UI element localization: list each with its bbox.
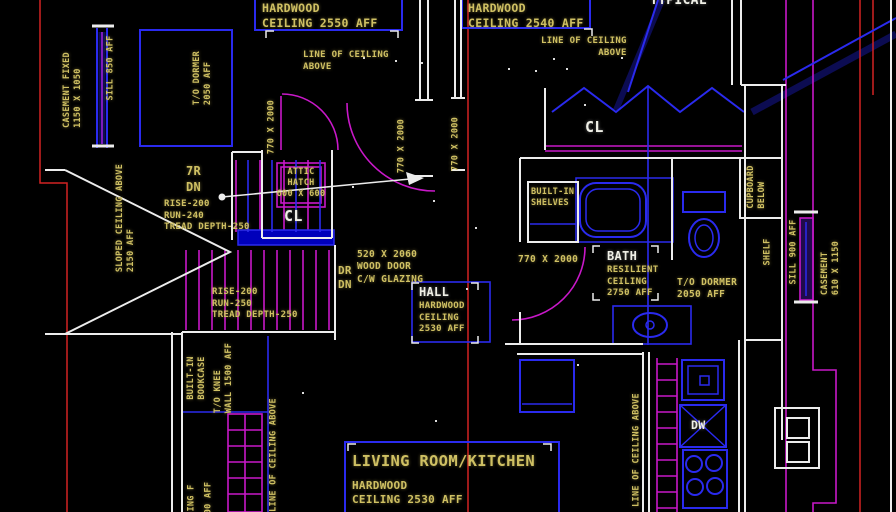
- label-line-of-ceiling-bottom-left: LINE OF CEILING ABOVE: [268, 398, 279, 512]
- label-to-dormer-right: T/O DORMER 2050 AFF: [677, 277, 737, 302]
- label-casement-610: CASEMENT 610 X 1150: [820, 241, 842, 295]
- label-cl-right: CL: [585, 118, 604, 138]
- label-line-of-ceiling-right: LINE OF CEILING ABOVE: [541, 36, 627, 59]
- label-builtin-bookcase: BUILT-IN BOOKCASE: [186, 356, 208, 399]
- label-living-sub: HARDWOOD CEILING 2530 AFF: [352, 479, 463, 508]
- label-sill-850: SILL 850 AFF: [105, 35, 116, 100]
- blue-layer: [97, 0, 896, 512]
- label-partial-1: ING F: [186, 484, 197, 511]
- label-dishwasher: DW: [691, 418, 705, 433]
- label-to-dormer-left: T/O DORMER 2050 AFF: [192, 51, 214, 105]
- label-partial-2: 00 AFF: [203, 482, 214, 512]
- cad-floorplan-canvas: HARDWOOD CEILING 2550 AFF LINE OF CEILIN…: [0, 0, 896, 512]
- label-cupboard-below: CUPBOARD BELOW: [746, 165, 768, 208]
- label-attic-hatch: ATTIC HATCH 600 X 600: [277, 167, 326, 200]
- label-hall-sub: HARDWOOD CEILING 2530 AFF: [419, 301, 465, 336]
- label-door-770-b: 770 X 2000: [396, 119, 407, 173]
- label-living-room-kitchen: LIVING ROOM/KITCHEN: [352, 451, 535, 471]
- label-wood-door: 520 X 2060 WOOD DOOR C/W GLAZING: [357, 249, 423, 286]
- label-bath: BATH: [607, 249, 637, 265]
- label-sloped-ceiling: SLOPED CEILING ABOVE 2150 AFF: [115, 164, 137, 272]
- label-7r-dn: 7R DN: [186, 164, 201, 195]
- label-typical: TYPICAL: [650, 0, 707, 10]
- red-reference-lines: [40, 0, 873, 512]
- label-to-knee-wall: T/O KNEE WALL 1500 AFF: [213, 343, 235, 413]
- label-line-of-ceiling-kitchen: LINE OF CEILING ABOVE: [631, 393, 642, 507]
- label-line-of-ceiling-left: LINE OF CEILING ABOVE: [303, 50, 389, 73]
- label-hardwood-2540: HARDWOOD CEILING 2540 AFF: [468, 1, 584, 31]
- label-hardwood-2550: HARDWOOD CEILING 2550 AFF: [262, 1, 378, 31]
- label-door-770-d: 770 X 2000: [518, 254, 578, 266]
- label-door-770-a: 770 X 2000: [266, 100, 277, 154]
- label-hall: HALL: [419, 285, 449, 301]
- label-shelf: SHELF: [762, 238, 773, 265]
- label-cl-left: CL: [284, 207, 303, 227]
- label-dr-dn: DR DN: [338, 264, 352, 293]
- label-builtin-shelves: BUILT-IN SHELVES: [531, 187, 574, 209]
- label-rise-run-upper: RISE-200 RUN-240 TREAD DEPTH-250: [164, 199, 250, 234]
- label-rise-run-lower: RISE-200 RUN-250 TREAD DEPTH-250: [212, 287, 298, 322]
- label-bath-sub: RESILIENT CEILING 2750 AFF: [607, 265, 658, 300]
- label-casement-fixed: CASEMENT FIXED 1150 X 1050: [62, 52, 84, 128]
- label-sill-900: SILL 900 AFF: [788, 219, 799, 284]
- label-door-770-c: 770 X 2000: [450, 117, 461, 171]
